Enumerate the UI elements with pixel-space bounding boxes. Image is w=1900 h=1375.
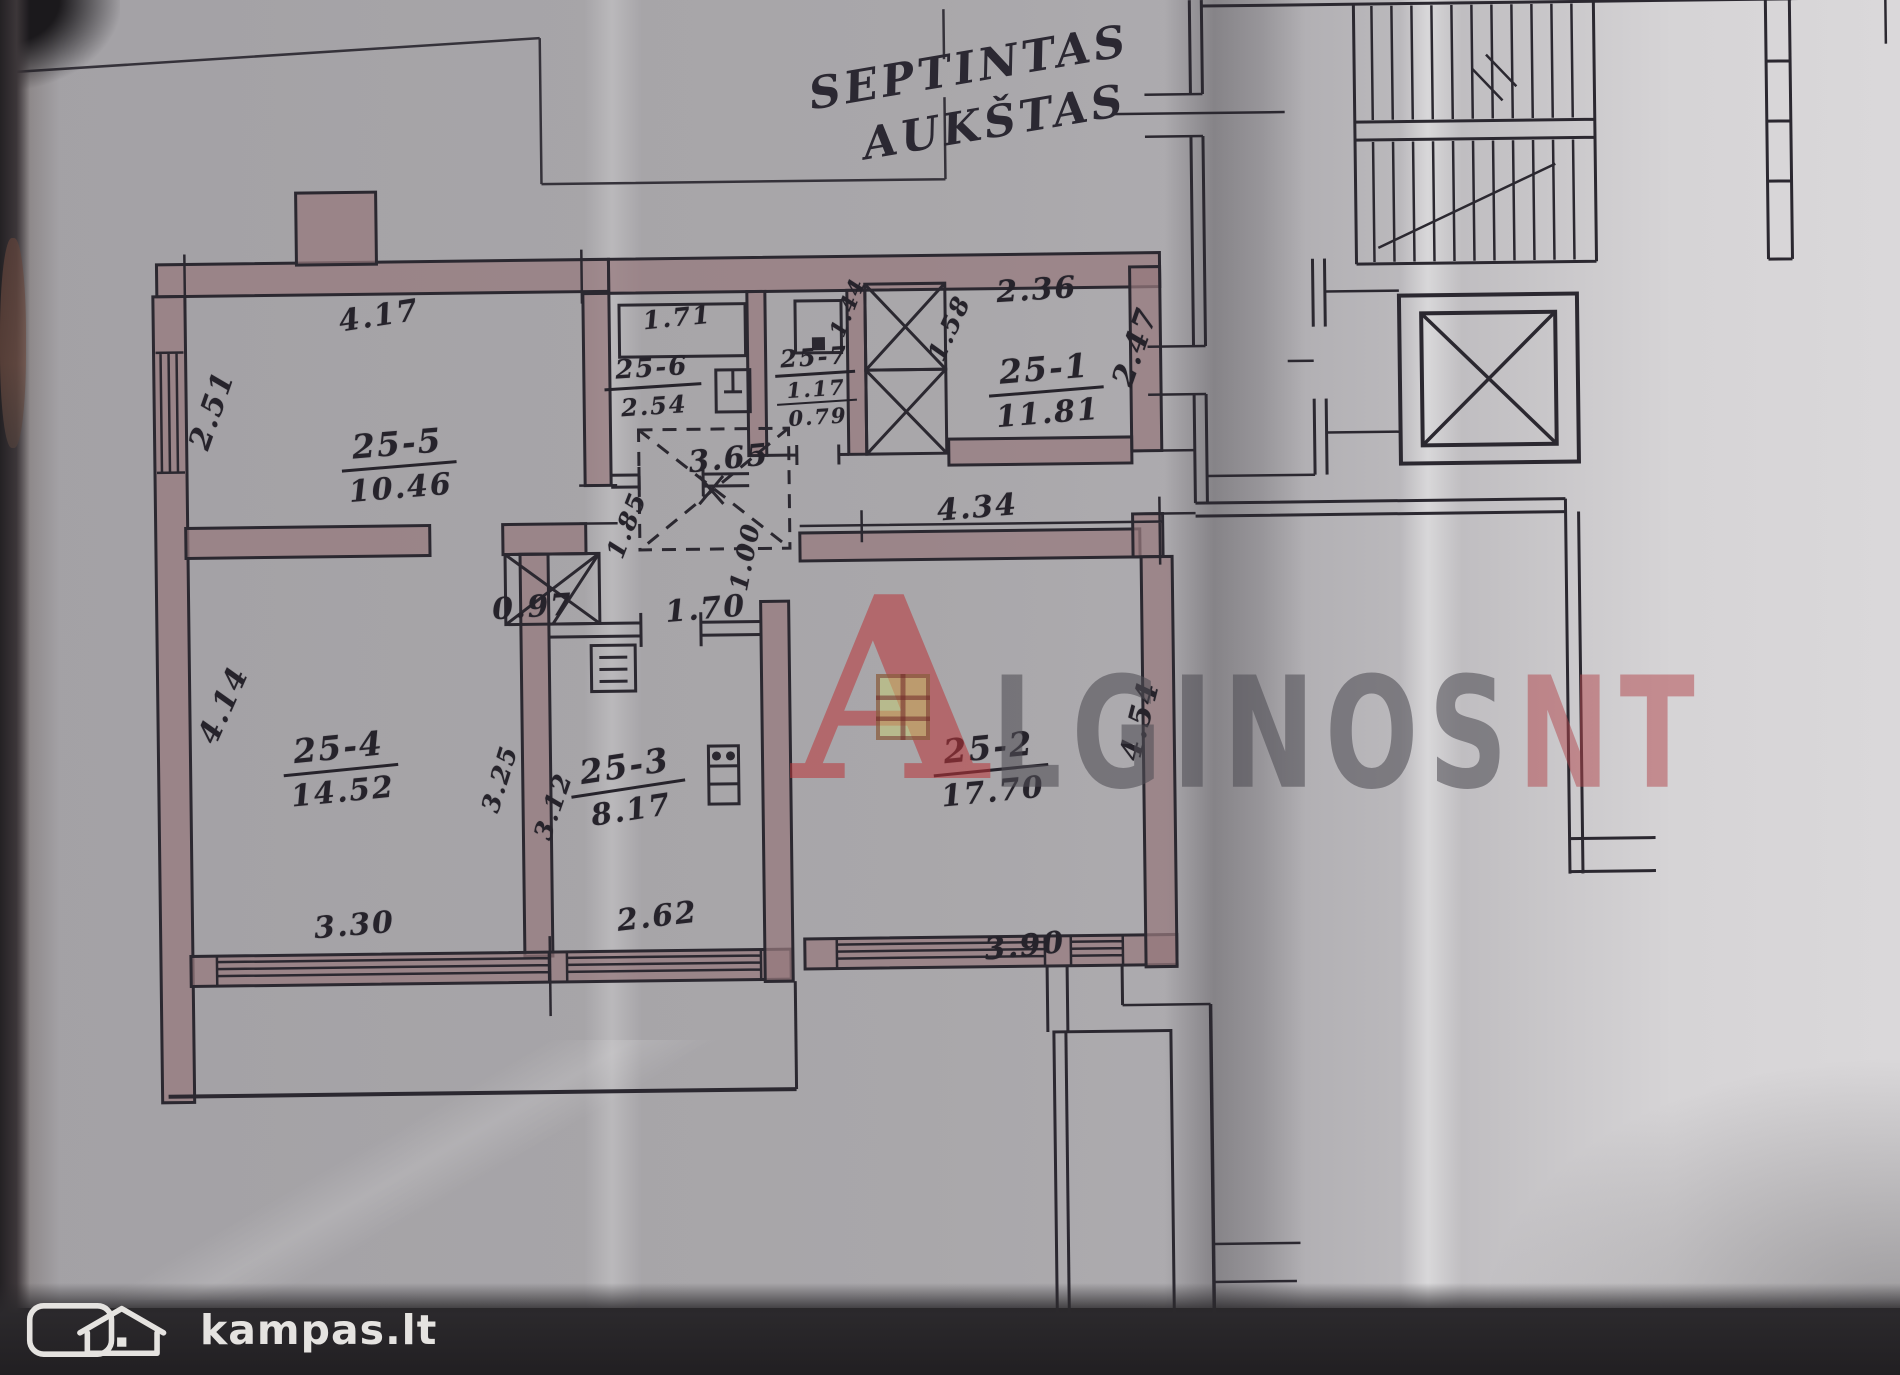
floorplan-drawing xyxy=(0,0,1900,1375)
dim-1-70: 1.70 xyxy=(664,588,748,630)
dim-0-97: 0.97 xyxy=(491,587,574,627)
elevator-symbol xyxy=(1399,293,1579,463)
room-id: 25-1 xyxy=(986,344,1104,397)
room-label-25-7: 25-7 1.17 0.79 xyxy=(773,340,859,432)
sheet-edge-lines xyxy=(3,9,945,190)
floorplan-photo: SEPTINTAS AUKŠTAS 25-5 10.46 25-6 2.54 2… xyxy=(0,0,1900,1375)
room-area: 1.17 xyxy=(775,374,857,406)
room-area2: 0.79 xyxy=(777,402,859,432)
dim-3-30: 3.30 xyxy=(313,905,397,947)
room-id: 25-7 xyxy=(773,340,855,378)
room-label-25-1: 25-1 11.81 xyxy=(986,344,1107,435)
stairs-symbol xyxy=(1353,1,1596,264)
room-label-25-5: 25-5 10.46 xyxy=(338,419,459,510)
room-label-25-6: 25-6 2.54 xyxy=(602,350,703,423)
stairwell-block xyxy=(1110,0,1896,879)
room-id: 25-6 xyxy=(602,350,701,391)
room-id: 25-5 xyxy=(338,419,456,472)
kampas-house-icon xyxy=(26,1299,184,1361)
room-label-25-3: 25-3 8.17 xyxy=(565,738,691,836)
dim-4-34: 4.34 xyxy=(936,487,1020,529)
room-label-25-4: 25-4 14.52 xyxy=(280,722,402,815)
kampas-logo: kampas.lt xyxy=(26,1299,437,1361)
dim-2-36: 2.36 xyxy=(995,270,1078,310)
kampas-logo-text: kampas.lt xyxy=(200,1306,437,1354)
room-label-25-2: 25-2 17.70 xyxy=(930,722,1052,815)
drawing-layer: SEPTINTAS AUKŠTAS 25-5 10.46 25-6 2.54 2… xyxy=(0,0,1900,1375)
